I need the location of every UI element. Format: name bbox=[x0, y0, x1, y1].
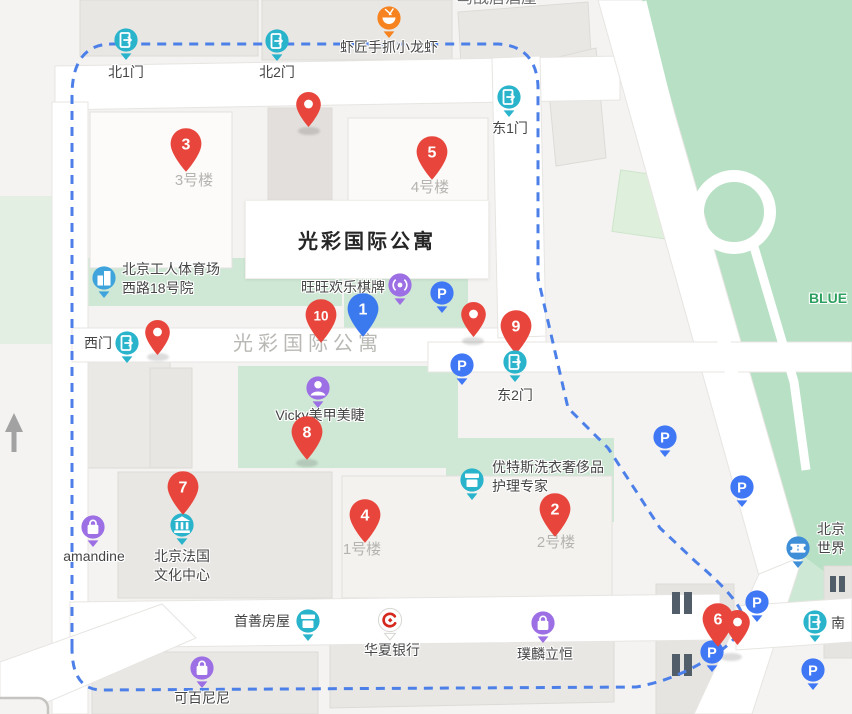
top-partial-label: 鸟战居酒屋 bbox=[457, 0, 537, 8]
amandine-icon[interactable] bbox=[80, 514, 106, 548]
svg-text:2: 2 bbox=[551, 502, 560, 519]
svg-text:3: 3 bbox=[182, 137, 191, 154]
corner-building-outline bbox=[0, 698, 48, 714]
map-marker-5[interactable]: 5 bbox=[415, 135, 449, 181]
map-marker-6[interactable]: 6 bbox=[701, 602, 735, 648]
park-label: BLUE bbox=[809, 289, 847, 308]
beijing-world-label[interactable]: 北京世界 bbox=[817, 520, 845, 558]
huaxia-bank-label[interactable]: 华夏银行 bbox=[364, 641, 420, 660]
french-culture-center-icon[interactable] bbox=[169, 512, 195, 546]
map-marker-8[interactable]: 8 bbox=[290, 415, 324, 461]
svg-text:P: P bbox=[752, 596, 762, 612]
map-marker-1[interactable]: 1 bbox=[346, 292, 380, 338]
svg-text:P: P bbox=[808, 664, 818, 680]
east-gate-1-label[interactable]: 东1门 bbox=[492, 119, 528, 138]
east-gate-1-icon[interactable] bbox=[496, 84, 522, 118]
north-gate-2-label[interactable]: 北2门 bbox=[259, 63, 295, 82]
crayfish-restaurant-label[interactable]: 虾匠手抓小龙虾 bbox=[340, 38, 438, 57]
svg-text:P: P bbox=[437, 287, 447, 303]
map-marker-2[interactable]: 2 bbox=[538, 492, 572, 538]
vicky-nails-icon[interactable] bbox=[305, 375, 331, 409]
wangwang-chess-icon[interactable] bbox=[387, 272, 413, 306]
svg-text:10: 10 bbox=[313, 309, 328, 324]
map-marker-3[interactable]: 3 bbox=[169, 127, 203, 173]
parking-icon[interactable]: P bbox=[800, 657, 826, 691]
svg-text:7: 7 bbox=[179, 480, 188, 497]
building-label: 3号楼 bbox=[175, 171, 213, 190]
pulinliheng-label[interactable]: 璞麟立恒 bbox=[517, 645, 573, 664]
svg-text:1: 1 bbox=[359, 302, 368, 319]
north-gate-2-icon[interactable] bbox=[264, 28, 290, 62]
svg-text:6: 6 bbox=[714, 612, 723, 629]
svg-text:P: P bbox=[457, 359, 467, 375]
shoushan-housing-icon[interactable] bbox=[295, 608, 321, 642]
workers-stadium-compound-icon[interactable] bbox=[91, 265, 117, 299]
map-pin[interactable] bbox=[295, 91, 322, 128]
svg-text:4: 4 bbox=[361, 508, 370, 525]
pin-shadow bbox=[298, 127, 320, 135]
residence-info-label: 光彩国际公寓 bbox=[298, 225, 436, 254]
beijing-world-icon[interactable] bbox=[785, 535, 811, 569]
map-marker-4[interactable]: 4 bbox=[348, 498, 382, 544]
french-culture-center-label[interactable]: 北京法国文化中心 bbox=[154, 547, 210, 585]
kebainini-label[interactable]: 可百尼尼 bbox=[174, 689, 230, 708]
workers-stadium-compound-label[interactable]: 北京工人体育场西路18号院 bbox=[122, 260, 220, 298]
east-gate-2-icon[interactable] bbox=[502, 349, 528, 383]
west-gate-icon[interactable] bbox=[114, 330, 140, 364]
pin-shadow bbox=[462, 337, 484, 345]
south-gate-icon[interactable] bbox=[802, 609, 828, 643]
parking-icon[interactable]: P bbox=[429, 280, 455, 314]
svg-text:P: P bbox=[660, 431, 670, 447]
map-marker-7[interactable]: 7 bbox=[166, 470, 200, 516]
pulinliheng-icon[interactable] bbox=[530, 610, 556, 644]
kebainini-icon[interactable] bbox=[189, 655, 215, 689]
svg-text:8: 8 bbox=[303, 425, 312, 442]
crayfish-restaurant-icon[interactable] bbox=[376, 5, 402, 39]
laundry-expert-icon[interactable] bbox=[459, 467, 485, 501]
west-gate-label[interactable]: 西门 bbox=[84, 334, 112, 353]
svg-text:5: 5 bbox=[428, 145, 437, 162]
residence-info-box: 光彩国际公寓 bbox=[245, 200, 489, 279]
amandine-label[interactable]: amandine bbox=[63, 547, 125, 566]
map-canvas[interactable]: 光彩国际公寓 P P P P P P P 北1门 北2门 东1门 西门 bbox=[0, 0, 852, 714]
svg-text:9: 9 bbox=[512, 319, 521, 336]
map-pin[interactable] bbox=[460, 301, 487, 338]
east-gate-2-label[interactable]: 东2门 bbox=[497, 386, 533, 405]
parking-icon[interactable]: P bbox=[449, 352, 475, 386]
svg-text:P: P bbox=[737, 481, 747, 497]
map-marker-10[interactable]: 10 bbox=[304, 298, 338, 344]
laundry-expert-label[interactable]: 优特斯洗衣奢侈品护理专家 bbox=[492, 458, 604, 496]
parking-icon[interactable]: P bbox=[729, 474, 755, 508]
north-gate-1-icon[interactable] bbox=[113, 27, 139, 61]
shoushan-housing-label[interactable]: 首善房屋 bbox=[234, 612, 290, 631]
north-gate-1-label[interactable]: 北1门 bbox=[108, 63, 144, 82]
parking-icon[interactable]: P bbox=[652, 424, 678, 458]
map-pin[interactable] bbox=[144, 319, 171, 356]
south-gate-label[interactable]: 南 bbox=[831, 614, 845, 633]
huaxia-bank-icon[interactable] bbox=[377, 607, 403, 641]
